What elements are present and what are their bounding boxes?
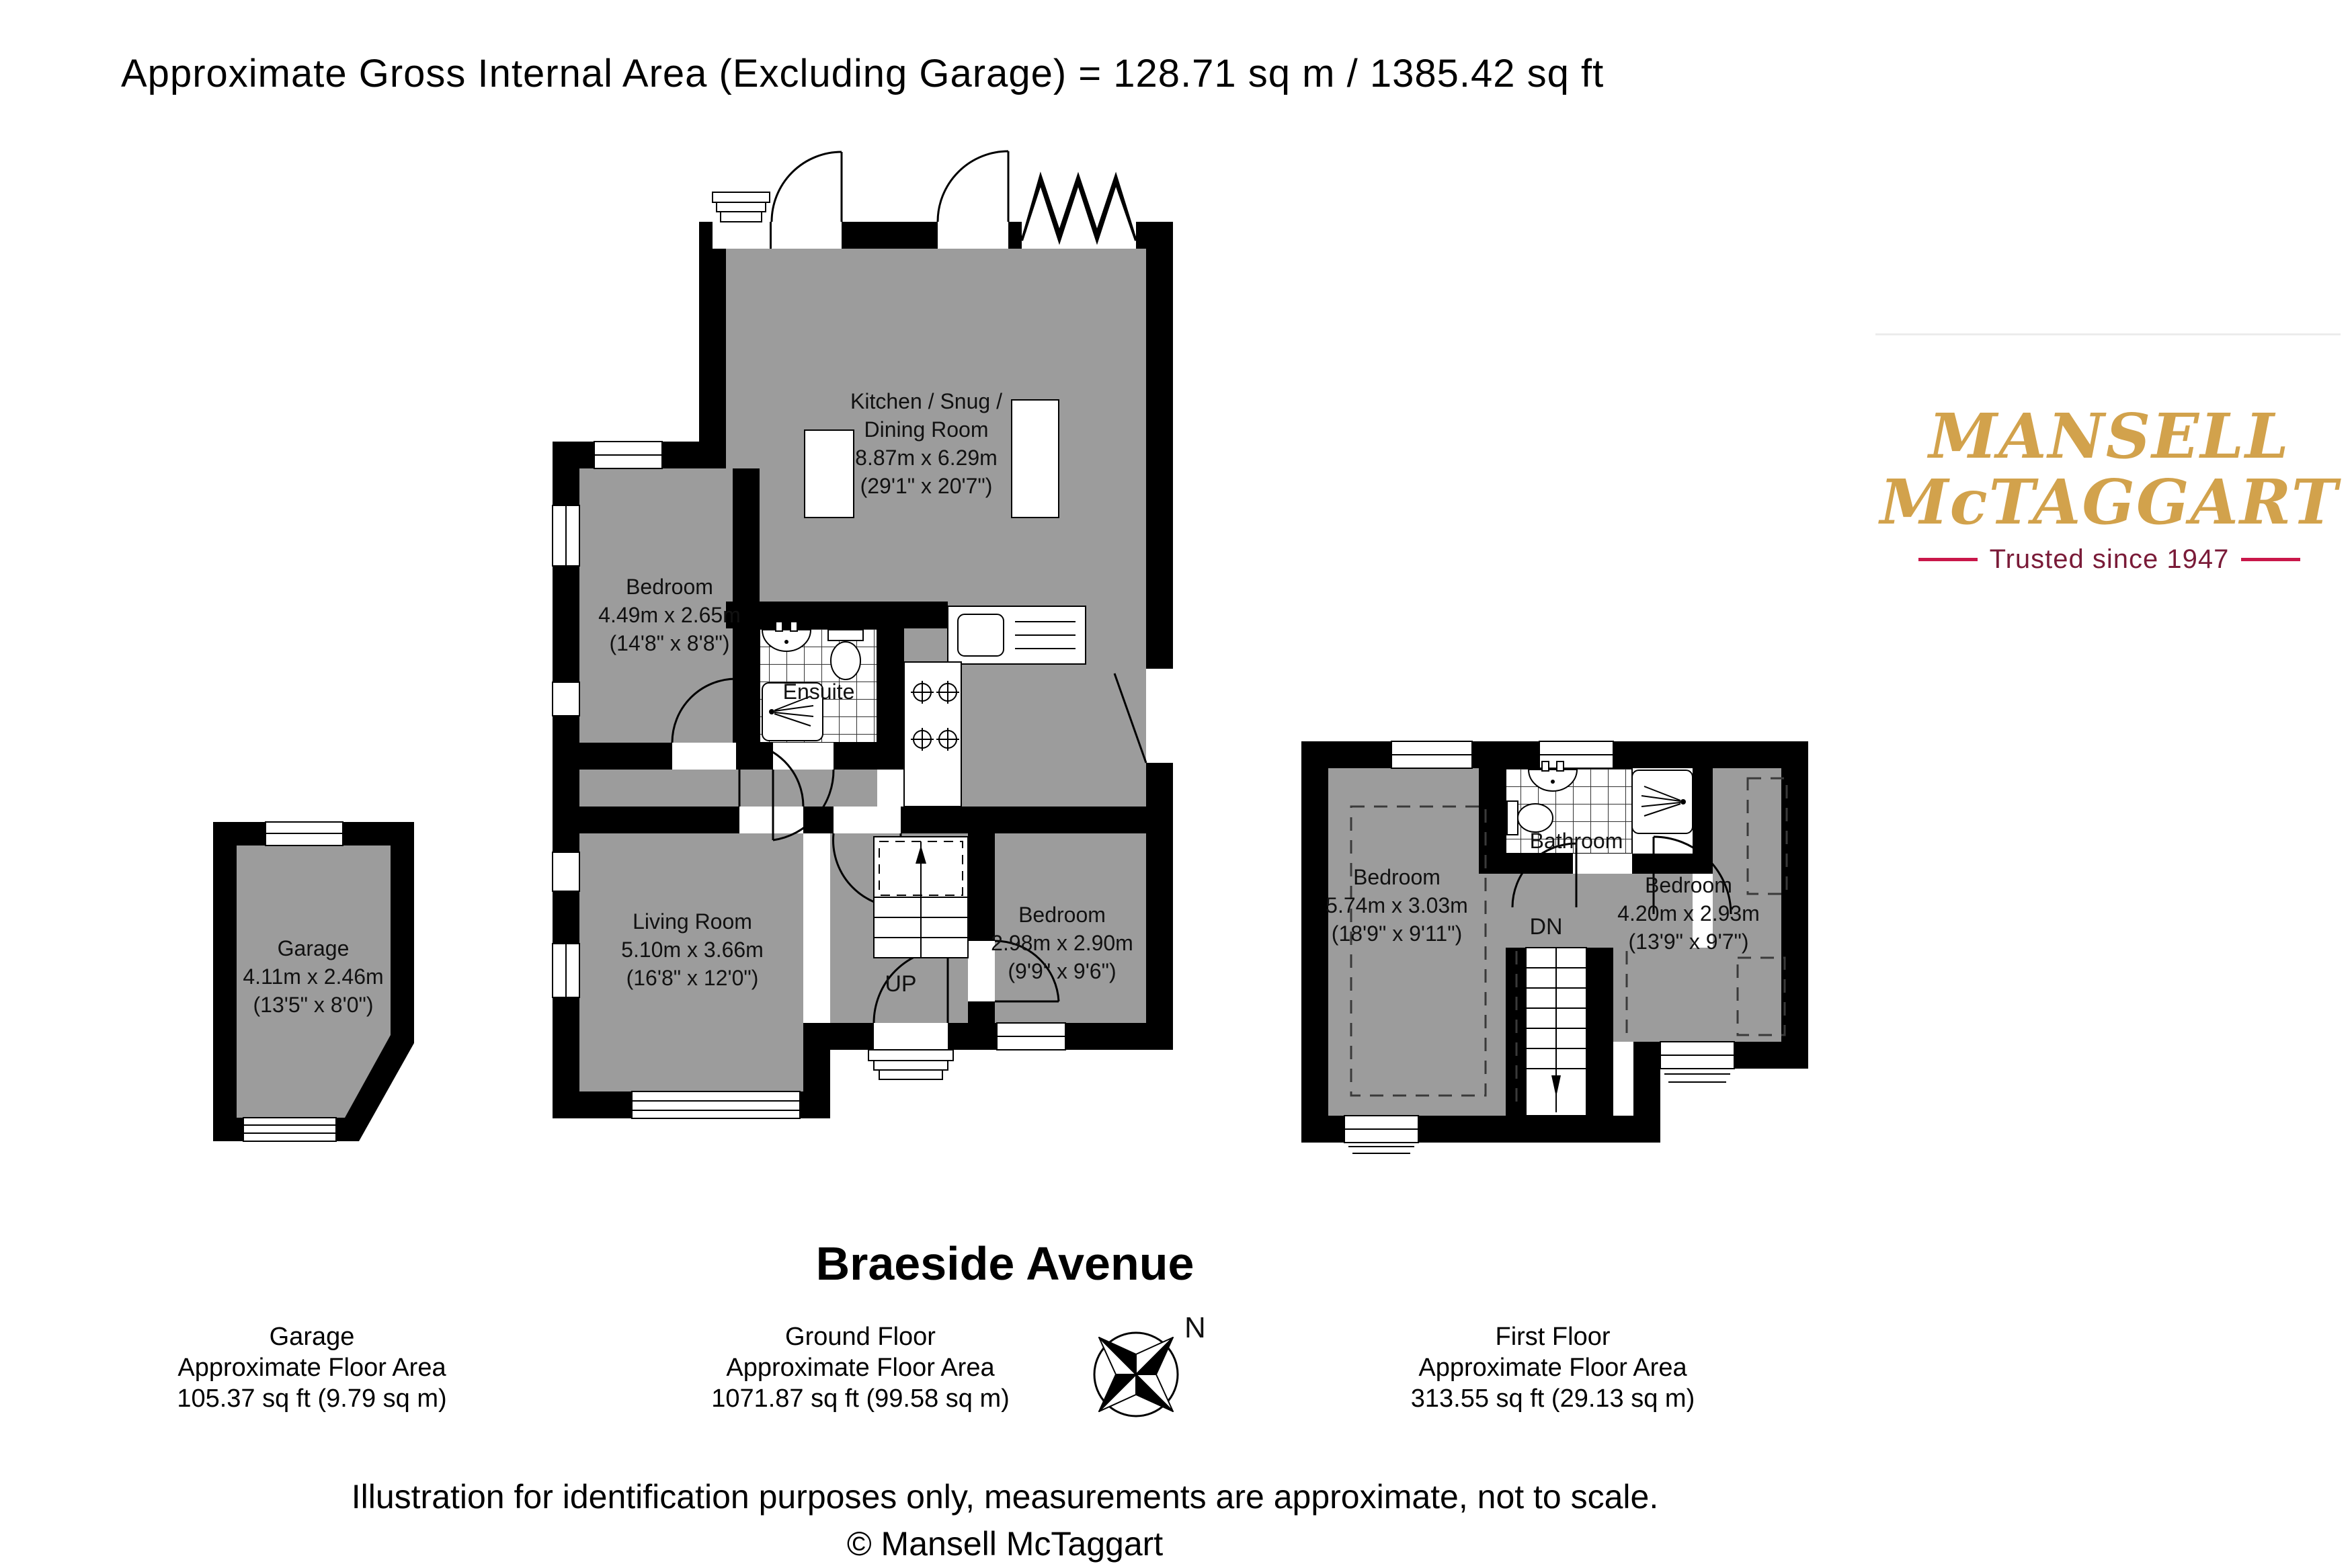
ground-floor-area-subtitle: Approximate Floor Area (659, 1352, 1062, 1383)
garage-area-summary: Garage Approximate Floor Area 105.37 sq … (110, 1321, 514, 1414)
logo-tagline: Trusted since 1947 (1874, 544, 2345, 575)
kitchen-label-line1: Kitchen / Snug / (850, 389, 1002, 413)
ground-floor-plan: Kitchen / Snug / Dining Room 8.87m x 6.2… (531, 141, 1203, 1129)
bedroom-rear-metric: 2.98m x 2.90m (991, 931, 1133, 955)
disclaimer-text: Illustration for identification purposes… (0, 1477, 2010, 1516)
bedroom-front-imperial: (14'8" x 8'8") (609, 631, 729, 655)
ff-stairs-down (1526, 948, 1586, 1116)
compass-north-label: N (1184, 1311, 1206, 1344)
ff-bathroom-label: Bathroom (1530, 829, 1623, 853)
ensuite-label: Ensuite (783, 679, 855, 704)
ground-floor-area-title: Ground Floor (659, 1321, 1062, 1352)
stairs-down-label: DN (1529, 914, 1562, 940)
living-room-label: Living Room (633, 909, 752, 934)
garage-plan: Garage 4.11m x 2.46m (13'5" x 8'0") (205, 817, 427, 1149)
ff-bedroom-left-label: Bedroom (1353, 865, 1441, 889)
garage-metric: 4.11m x 2.46m (243, 964, 383, 989)
garage-label: Garage (278, 936, 350, 960)
stairs-up-label: UP (885, 971, 916, 997)
logo-divider-rule (1875, 333, 2341, 335)
living-room-metric: 5.10m x 3.66m (621, 938, 764, 962)
page-title: Approximate Gross Internal Area (Excludi… (121, 51, 1604, 96)
tagline-rule-right (2241, 558, 2300, 561)
ff-bedroom-left-imperial: (18'9" x 9'11") (1332, 921, 1462, 946)
agency-logo: MANSELL McTAGGART Trusted since 1947 (1874, 403, 2345, 575)
bedroom-rear-label: Bedroom (1018, 903, 1106, 927)
copyright-text: © Mansell McTaggart (0, 1524, 2010, 1563)
kitchen-label-line2: Dining Room (864, 417, 989, 442)
logo-wordmark-line2: McTAGGART (1874, 469, 2345, 535)
first-floor-area-title: First Floor (1351, 1321, 1754, 1352)
first-floor-area-value: 313.55 sq ft (29.13 sq m) (1351, 1383, 1754, 1414)
gf-ensuite-toilet (828, 630, 863, 679)
compass-rose: N (1082, 1301, 1233, 1428)
tagline-text: Trusted since 1947 (1990, 544, 2230, 575)
ff-bedroom-left-metric: 5.74m x 3.03m (1326, 893, 1468, 917)
first-floor-area-summary: First Floor Approximate Floor Area 313.5… (1351, 1321, 1754, 1414)
living-room-imperial: (16'8" x 12'0") (626, 966, 759, 990)
bedroom-front-label: Bedroom (626, 575, 713, 599)
kitchen-label-metric: 8.87m x 6.29m (855, 446, 998, 470)
garage-area-subtitle: Approximate Floor Area (110, 1352, 514, 1383)
tagline-rule-left (1918, 558, 1978, 561)
ff-bedroom-right-imperial: (13'9" x 9'7") (1628, 930, 1748, 954)
garage-imperial: (13'5" x 8'0") (253, 993, 373, 1017)
bedroom-rear-imperial: (9'9" x 9'6") (1008, 959, 1116, 983)
kitchen-label-imperial: (29'1" x 20'7") (860, 474, 993, 498)
garage-area-value: 105.37 sq ft (9.79 sq m) (110, 1383, 514, 1414)
first-floor-plan: Bedroom 5.74m x 3.03m (18'9" x 9'11") Be… (1294, 733, 1818, 1163)
ground-floor-area-summary: Ground Floor Approximate Floor Area 1071… (659, 1321, 1062, 1414)
compass-star (1099, 1337, 1173, 1411)
garage-area-title: Garage (110, 1321, 514, 1352)
gf-stairs-up (874, 837, 968, 958)
bedroom-front-metric: 4.49m x 2.65m (598, 603, 741, 627)
ground-floor-area-value: 1071.87 sq ft (99.58 sq m) (659, 1383, 1062, 1414)
ff-bedroom-right-label: Bedroom (1645, 873, 1732, 897)
logo-wordmark-line1: MANSELL (1874, 403, 2345, 469)
first-floor-area-subtitle: Approximate Floor Area (1351, 1352, 1754, 1383)
address-title: Braeside Avenue (333, 1237, 1677, 1290)
ff-bedroom-right-metric: 4.20m x 2.93m (1617, 901, 1760, 925)
floorplan-page: Approximate Gross Internal Area (Excludi… (0, 0, 2352, 1568)
